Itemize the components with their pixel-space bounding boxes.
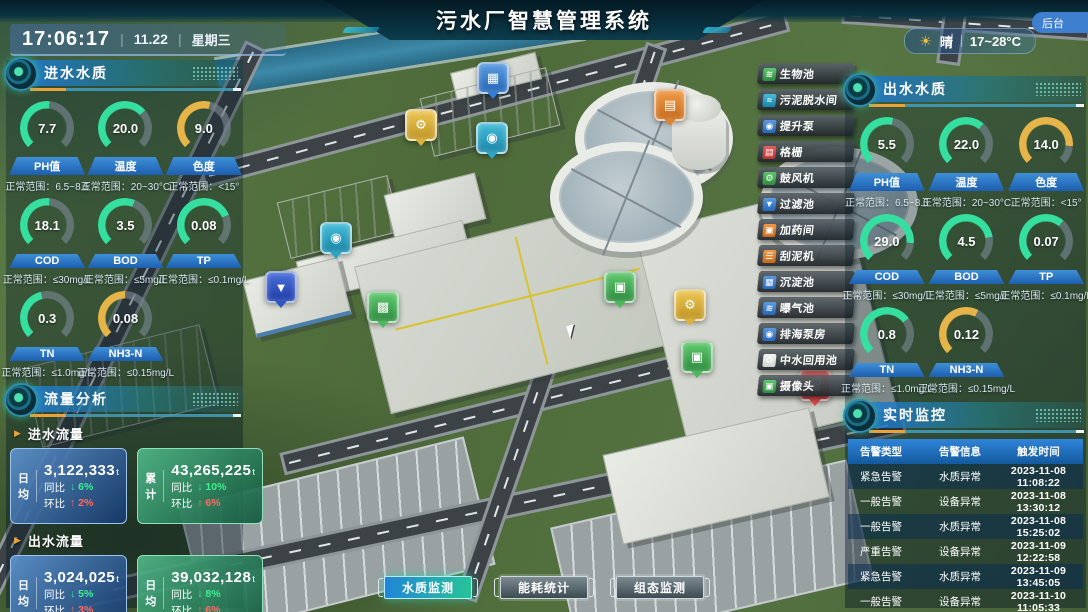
flow-value-number: 43,265,225	[171, 462, 251, 479]
gauge-ring: 22.0	[939, 117, 993, 171]
alarm-type: 紧急告警	[848, 469, 926, 484]
weather-bar: ☀ 晴 17~28°C	[904, 28, 1036, 54]
water-quality-gauge: 18.1 COD 正常范围：≤30mg/L	[8, 198, 86, 286]
flow-mom-row: 环比↑ 2%	[44, 496, 119, 511]
water-quality-gauge: 9.0 色度 正常范围：<15°	[165, 101, 243, 193]
alarm-table-header: 告警类型 告警信息 触发时间	[848, 439, 1083, 464]
water-quality-gauge: 0.08 TP 正常范围：≤0.1mg/L	[165, 198, 243, 286]
triangle-bullet-icon: ▶	[14, 428, 22, 439]
gauge-value: 14.0	[1019, 117, 1073, 171]
up-arrow-icon: ↑	[70, 604, 75, 612]
water-quality-gauge: 0.12 NH3-N 正常范围：≤0.15mg/L	[927, 307, 1007, 395]
flow-value-number: 39,032,128	[171, 569, 251, 586]
subtitle-text: 进水流量	[28, 424, 84, 443]
gauge-normal-range: 正常范围：≤0.1mg/L	[158, 271, 250, 286]
water-quality-gauge: 22.0 温度 正常范围：20~30°C	[927, 117, 1007, 209]
filter-pool-icon: ▼	[762, 198, 776, 211]
map-marker[interactable]: ▦	[477, 62, 509, 94]
subtitle-text: 出水流量	[28, 531, 84, 550]
inflow-subtitle: ▶ 进水流量	[14, 424, 243, 443]
sludge-dewatering-icon: ≈	[762, 94, 776, 107]
mud-scraper-icon: ☰	[762, 250, 776, 263]
separator: |	[120, 31, 124, 47]
grille-icon: ▤	[664, 97, 676, 113]
gauge-normal-range: 正常范围：6.5~8.5	[5, 178, 89, 193]
gauge-ring: 14.0	[1019, 117, 1073, 171]
section-title: 进水水质	[44, 63, 108, 83]
flow-unit: t	[116, 574, 119, 584]
map-facility-label[interactable]: ▣ 加药间	[757, 219, 855, 240]
alarm-row: 严重告警 设备异常 2023-11-09 12:22:58	[848, 539, 1083, 564]
gauge-ring: 3.5	[98, 198, 152, 252]
pump-icon: ◉	[330, 230, 341, 246]
section-underline	[869, 104, 1084, 107]
flow-value-number: 3,024,025	[44, 569, 115, 586]
flow-stat-card: 日均 3,024,025t 同比↓ 5% 环比↑ 3%	[10, 555, 127, 612]
gauge-normal-range: 正常范围：≤5mg/L	[84, 271, 167, 286]
facility-label-text: 格栅	[779, 144, 804, 160]
up-arrow-icon: ↑	[197, 497, 202, 509]
filter-funnel-icon: ▼	[275, 280, 288, 295]
yoy-trend: ↓ 6%	[70, 481, 93, 493]
water-reuse-pool-icon: ♻	[762, 354, 776, 367]
column-header: 告警类型	[848, 444, 926, 459]
mom-value: 2%	[78, 497, 93, 509]
flow-stat-card: 累计 43,265,225t 同比↓ 10% 环比↑ 6%	[137, 448, 263, 524]
inflow-cards: 日均 3,122,333t 同比↓ 6% 环比↑ 2% 累计 43,265,22…	[6, 448, 243, 524]
yoy-value: 5%	[78, 588, 93, 600]
water-quality-gauge: 7.7 PH值 正常范围：6.5~8.5	[8, 101, 86, 193]
yoy-label: 同比	[171, 587, 192, 602]
gauge-label: COD	[9, 254, 85, 268]
alarm-table: 告警类型 告警信息 触发时间 紧急告警 水质异常 2023-11-08 11:0…	[848, 439, 1083, 612]
alarm-info: 设备异常	[926, 594, 994, 609]
facility-label-text: 过滤池	[779, 196, 815, 212]
facility-label-text: 提升泵	[779, 118, 815, 134]
inlet-quality-section: 进水水质 7.7 PH值 正常范围：6.5~8.5 20.0 温度 正常范围：2…	[6, 60, 243, 384]
flow-stat-card: 日均 3,122,333t 同比↓ 6% 环比↑ 2%	[10, 448, 127, 524]
alarm-info: 设备异常	[926, 494, 994, 509]
alarm-type: 一般告警	[848, 494, 926, 509]
gauge-normal-range: 正常范围：≤0.15mg/L	[77, 364, 174, 379]
outflow-subtitle: ▶ 出水流量	[14, 531, 243, 550]
yoy-value: 8%	[205, 588, 220, 600]
down-arrow-icon: ↓	[197, 588, 202, 600]
gauge-label: NH3-N	[928, 363, 1004, 377]
mom-label: 环比	[171, 496, 192, 511]
mom-label: 环比	[171, 603, 192, 612]
separator: |	[178, 31, 182, 47]
gauge-label: TP	[166, 254, 242, 268]
gauge-ring: 0.08	[98, 291, 152, 345]
gauge-value: 5.5	[860, 117, 914, 171]
map-marker[interactable]: ▣	[681, 341, 713, 373]
facility-label-text: 中水回用池	[779, 352, 838, 368]
section-underline	[30, 88, 241, 91]
alarm-type: 一般告警	[848, 519, 926, 534]
sun-icon: ☀	[919, 33, 932, 50]
gauge-ring: 0.12	[939, 307, 993, 361]
gauge-normal-range: 正常范围：≤0.1mg/L	[1000, 287, 1088, 302]
alarm-time: 2023-11-08 15:25:02	[994, 515, 1083, 539]
gauge-label: TP	[1008, 270, 1084, 284]
flow-card-body: 43,265,225t 同比↓ 10% 环比↑ 6%	[171, 462, 255, 511]
gauge-value: 29.0	[860, 214, 914, 268]
section-header: 进水水质	[30, 60, 243, 86]
water-quality-gauge: 0.3 TN 正常范围：≤1.0mg/L	[8, 291, 86, 379]
down-arrow-icon: ↓	[70, 588, 75, 600]
gauge-label: 色度	[166, 157, 242, 175]
blower-fan-icon: ⚙	[684, 297, 696, 313]
outflow-cards: 日均 3,024,025t 同比↓ 5% 环比↑ 3% 日均 39,032,12…	[6, 555, 243, 612]
alarm-info: 设备异常	[926, 544, 994, 559]
alarm-type: 严重告警	[848, 544, 926, 559]
gauge-normal-range: 正常范围：<15°	[1011, 194, 1082, 209]
flow-card-tag: 日均	[145, 577, 164, 609]
alarm-info: 水质异常	[926, 569, 994, 584]
flow-card-tag: 日均	[18, 470, 37, 502]
water-quality-gauge: 0.07 TP 正常范围：≤0.1mg/L	[1006, 214, 1086, 302]
alarm-info: 水质异常	[926, 469, 994, 484]
up-arrow-icon: ↑	[70, 497, 75, 509]
map-marker[interactable]: ⚙	[405, 109, 437, 141]
column-header: 告警信息	[926, 444, 994, 459]
facility-label-text: 曝气池	[779, 300, 815, 316]
flow-yoy-row: 同比↓ 5%	[44, 587, 119, 602]
map-marker[interactable]: ▩	[367, 291, 399, 323]
flow-card-body: 39,032,128t 同比↓ 8% 环比↑ 6%	[171, 569, 255, 612]
section-underline	[869, 430, 1084, 433]
mom-value: 6%	[205, 497, 220, 509]
alarm-time: 2023-11-09 12:22:58	[994, 540, 1083, 564]
map-marker[interactable]: ▼	[265, 271, 297, 303]
gauge-value: 22.0	[939, 117, 993, 171]
date: 11.22	[134, 31, 168, 47]
blower-fan-icon: ⚙	[762, 172, 776, 185]
flow-card-tag: 日均	[18, 577, 37, 609]
mom-trend: ↑ 3%	[70, 604, 93, 612]
alarm-table-body: 紧急告警 水质异常 2023-11-08 11:08:22 一般告警 设备异常 …	[848, 464, 1083, 612]
datetime-bar: 17:06:17 | 11.22 | 星期三	[10, 24, 286, 56]
flow-card-tag: 累计	[145, 470, 164, 502]
map-marker[interactable]: ▤	[654, 89, 686, 121]
map-marker[interactable]: ▣	[604, 271, 636, 303]
alarm-time: 2023-11-09 13:45:05	[994, 565, 1083, 589]
dosing-room-icon: ▩	[377, 299, 389, 315]
tab-scada-monitor[interactable]: 组态监测	[616, 576, 704, 599]
sedimentation-pool-icon: ▦	[762, 276, 776, 289]
tab-water-quality-monitor[interactable]: 水质监测	[384, 576, 472, 599]
gauge-ring: 18.1	[20, 198, 74, 252]
weather-condition: 晴	[940, 32, 953, 51]
map-facility-label[interactable]: ≈ 污泥脱水间	[757, 89, 855, 110]
flow-value: 39,032,128t	[171, 569, 255, 586]
mom-value: 6%	[205, 604, 220, 612]
yoy-trend: ↓ 5%	[70, 588, 93, 600]
right-panel: 出水水质 5.5 PH值 正常范围：6.5~8.5 22.0 温度 正常范围：2…	[845, 76, 1086, 608]
grille-icon: ▤	[762, 146, 776, 159]
gauge-label: BOD	[928, 270, 1004, 284]
flow-value: 43,265,225t	[171, 462, 255, 479]
facility-label-text: 鼓风机	[779, 170, 815, 186]
gauge-ring: 4.5	[939, 214, 993, 268]
map-facility-label[interactable]: ☰ 刮泥机	[757, 245, 855, 266]
yoy-value: 6%	[78, 481, 93, 493]
divider	[961, 35, 962, 47]
clock: 17:06:17	[22, 28, 110, 51]
footer-tab-bar: 水质监测 能耗统计 组态监测	[384, 576, 704, 599]
alarm-row: 一般告警 设备异常 2023-11-10 11:05:33	[848, 589, 1083, 612]
facility-label-text: 沉淀池	[779, 274, 815, 290]
yoy-trend: ↓ 8%	[197, 588, 220, 600]
flow-yoy-row: 同比↓ 10%	[171, 480, 255, 495]
gauge-ring: 0.07	[1019, 214, 1073, 268]
gauge-label: PH值	[9, 157, 85, 175]
map-facility-label[interactable]: ▼ 过滤池	[757, 193, 855, 214]
camera-icon: ▣	[762, 380, 776, 393]
map-marker[interactable]: ◉	[320, 222, 352, 254]
yoy-value: 10%	[205, 481, 226, 493]
flow-unit: t	[252, 467, 255, 477]
water-quality-gauge: 0.08 NH3-N 正常范围：≤0.15mg/L	[86, 291, 164, 379]
flow-card-body: 3,122,333t 同比↓ 6% 环比↑ 2%	[44, 462, 119, 511]
dashboard: ▦ ⚙ ◉ ▤ ◉ ▼ ▩ ▣ ⚙ ▣ ≋ 生物池 ≈ 污泥脱水间 ◉ 提升泵 …	[0, 0, 1088, 612]
water-quality-gauge: 14.0 色度 正常范围：<15°	[1006, 117, 1086, 209]
alarm-type: 一般告警	[848, 594, 926, 609]
yoy-label: 同比	[44, 587, 65, 602]
alarm-row: 一般告警 设备异常 2023-11-08 13:30:12	[848, 489, 1083, 514]
water-quality-gauge: 0.8 TN 正常范围：≤1.0mg/L	[847, 307, 927, 395]
water-quality-gauge: 4.5 BOD 正常范围：≤5mg/L	[927, 214, 1007, 302]
flow-mom-row: 环比↑ 3%	[44, 603, 119, 612]
page-title: 污水厂智慧管理系统	[436, 5, 652, 35]
up-arrow-icon: ↑	[197, 604, 202, 612]
tab-energy-statistics[interactable]: 能耗统计	[500, 576, 588, 599]
radar-ring-icon	[843, 73, 877, 107]
gauge-label: 色度	[1008, 173, 1084, 191]
backstage-button[interactable]: 后台	[1032, 12, 1088, 33]
gauge-ring: 20.0	[98, 101, 152, 155]
gauge-normal-range: 正常范围：20~30°C	[81, 178, 170, 193]
gauge-value: 20.0	[98, 101, 152, 155]
alarm-info: 水质异常	[926, 519, 994, 534]
gauge-normal-range: 正常范围：<15°	[168, 178, 239, 193]
down-arrow-icon: ↓	[197, 481, 202, 493]
radar-ring-icon	[4, 383, 38, 417]
flow-yoy-row: 同比↓ 8%	[171, 587, 255, 602]
gauge-label: COD	[849, 270, 925, 284]
gauge-normal-range: 正常范围：≤5mg/L	[925, 287, 1008, 302]
gauge-normal-range: 正常范围：≤0.15mg/L	[918, 380, 1015, 395]
bio-pool-icon: ≋	[762, 68, 776, 81]
section-header: 实时监控	[869, 402, 1086, 428]
yoy-label: 同比	[44, 480, 65, 495]
title-accent	[702, 27, 732, 33]
map-facility-label[interactable]: ♻ 中水回用池	[757, 349, 855, 370]
water-quality-gauge: 5.5 PH值 正常范围：6.5~8.5	[847, 117, 927, 209]
gauge-value: 18.1	[20, 198, 74, 252]
gauge-normal-range: 正常范围：6.5~8.5	[845, 194, 929, 209]
section-title: 流量分析	[44, 389, 108, 409]
gauge-label: 温度	[928, 173, 1004, 191]
flow-analysis-section: 流量分析 ▶ 进水流量 日均 3,122,333t 同比↓ 6% 环比↑ 2% …	[6, 386, 243, 612]
lift-pump-icon: ◉	[762, 120, 776, 133]
flow-value: 3,122,333t	[44, 462, 119, 479]
section-title: 出水水质	[883, 79, 947, 99]
gauge-value: 3.5	[98, 198, 152, 252]
weather-temperature: 17~28°C	[970, 34, 1021, 49]
gauge-label: TN	[849, 363, 925, 377]
flow-stat-card: 日均 39,032,128t 同比↓ 8% 环比↑ 6%	[137, 555, 263, 612]
gauge-normal-range: 正常范围：≤30mg/L	[842, 287, 931, 302]
water-quality-gauge: 29.0 COD 正常范围：≤30mg/L	[847, 214, 927, 302]
flow-mom-row: 环比↑ 6%	[171, 496, 255, 511]
alarm-row: 紧急告警 水质异常 2023-11-08 11:08:22	[848, 464, 1083, 489]
radar-ring-icon	[4, 57, 38, 91]
facility-label-text: 污泥脱水间	[779, 92, 838, 108]
mom-label: 环比	[44, 496, 65, 511]
gauge-normal-range: 正常范围：20~30°C	[922, 194, 1011, 209]
camera-icon: ▣	[691, 349, 703, 365]
flow-yoy-row: 同比↓ 6%	[44, 480, 119, 495]
water-quality-gauge: 3.5 BOD 正常范围：≤5mg/L	[86, 198, 164, 286]
mom-value: 3%	[78, 604, 93, 612]
map-facility-label[interactable]: ⚙ 鼓风机	[757, 167, 855, 188]
mom-trend: ↑ 6%	[197, 604, 220, 612]
gauge-ring: 0.08	[177, 198, 231, 252]
triangle-bullet-icon: ▶	[14, 535, 22, 546]
map-facility-label[interactable]: ▦ 沉淀池	[757, 271, 855, 292]
flow-unit: t	[116, 467, 119, 477]
gauge-ring: 7.7	[20, 101, 74, 155]
aeration-pool-icon: ≋	[762, 302, 776, 315]
gauge-value: 9.0	[177, 101, 231, 155]
facility-label-text: 生物池	[779, 66, 815, 82]
gauge-value: 0.8	[860, 307, 914, 361]
alarm-time: 2023-11-10 11:05:33	[994, 590, 1083, 612]
map-facility-label[interactable]: ≋ 生物池	[757, 63, 855, 84]
map-facility-label[interactable]: ◉ 排海泵房	[757, 323, 855, 344]
outlet-quality-section: 出水水质 5.5 PH值 正常范围：6.5~8.5 22.0 温度 正常范围：2…	[845, 76, 1086, 400]
gauge-ring: 0.3	[20, 291, 74, 345]
section-underline	[30, 414, 241, 417]
flow-value-number: 3,122,333	[44, 462, 115, 479]
gauge-label: PH值	[849, 173, 925, 191]
gauge-ring: 5.5	[860, 117, 914, 171]
map-facility-label[interactable]: ▤ 格栅	[757, 141, 855, 162]
title-accent	[342, 27, 380, 33]
gauge-value: 7.7	[20, 101, 74, 155]
mom-trend: ↑ 2%	[70, 497, 93, 509]
gauge-value: 0.07	[1019, 214, 1073, 268]
section-title: 实时监控	[883, 405, 947, 425]
blower-fan-icon: ⚙	[415, 117, 427, 133]
left-panel: 进水水质 7.7 PH值 正常范围：6.5~8.5 20.0 温度 正常范围：2…	[6, 60, 243, 608]
facility-label-text: 刮泥机	[779, 248, 815, 264]
gauge-value: 0.08	[98, 291, 152, 345]
yellow-pipe	[515, 237, 549, 366]
mom-label: 环比	[44, 603, 65, 612]
radar-ring-icon	[843, 399, 877, 433]
water-quality-gauge: 20.0 温度 正常范围：20~30°C	[86, 101, 164, 193]
gauge-ring: 0.8	[860, 307, 914, 361]
facility-label-list: ≋ 生物池 ≈ 污泥脱水间 ◉ 提升泵 ▤ 格栅 ⚙ 鼓风机 ▼ 过滤池 ▣ 加…	[758, 63, 854, 396]
gauge-ring: 9.0	[177, 101, 231, 155]
flow-unit: t	[252, 574, 255, 584]
realtime-monitor-section: 实时监控 告警类型 告警信息 触发时间 紧急告警 水质异常 2023-11-08…	[845, 402, 1086, 612]
down-arrow-icon: ↓	[70, 481, 75, 493]
flow-card-body: 3,024,025t 同比↓ 5% 环比↑ 3%	[44, 569, 119, 612]
flow-mom-row: 环比↑ 6%	[171, 603, 255, 612]
gauge-label: NH3-N	[87, 347, 163, 361]
gauge-label: 温度	[87, 157, 163, 175]
map-marker[interactable]: ◉	[476, 122, 508, 154]
sea-discharge-pump-icon: ◉	[762, 328, 776, 341]
section-header: 出水水质	[869, 76, 1086, 102]
column-header: 触发时间	[994, 444, 1083, 459]
facility-label-text: 摄像头	[779, 378, 815, 394]
gauge-value: 0.08	[177, 198, 231, 252]
yoy-label: 同比	[171, 480, 192, 495]
facility-label-text: 排海泵房	[779, 326, 827, 342]
alarm-time: 2023-11-08 13:30:12	[994, 490, 1083, 514]
gauge-ring: 29.0	[860, 214, 914, 268]
gauge-value: 0.3	[20, 291, 74, 345]
gauge-label: BOD	[87, 254, 163, 268]
alarm-type: 紧急告警	[848, 569, 926, 584]
yoy-trend: ↓ 10%	[197, 481, 226, 493]
inlet-gauge-grid: 7.7 PH值 正常范围：6.5~8.5 20.0 温度 正常范围：20~30°…	[6, 95, 243, 384]
dosing-room-icon: ▣	[762, 224, 776, 237]
lift-pump-icon: ◉	[486, 130, 497, 146]
facility-label-text: 加药间	[779, 222, 815, 238]
flow-value: 3,024,025t	[44, 569, 119, 586]
camera-icon: ▣	[614, 279, 626, 295]
mom-trend: ↑ 6%	[197, 497, 220, 509]
gauge-normal-range: 正常范围：≤30mg/L	[3, 271, 92, 286]
gauge-value: 0.12	[939, 307, 993, 361]
alarm-time: 2023-11-08 11:08:22	[994, 465, 1083, 489]
alarm-row: 紧急告警 水质异常 2023-11-09 13:45:05	[848, 564, 1083, 589]
gauge-label: TN	[9, 347, 85, 361]
map-facility-label[interactable]: ≋ 曝气池	[757, 297, 855, 318]
sedimentation-pool-icon: ▦	[487, 70, 499, 86]
map-facility-label[interactable]: ◉ 提升泵	[757, 115, 855, 136]
outlet-gauge-grid: 5.5 PH值 正常范围：6.5~8.5 22.0 温度 正常范围：20~30°…	[845, 111, 1086, 400]
alarm-row: 一般告警 水质异常 2023-11-08 15:25:02	[848, 514, 1083, 539]
weekday: 星期三	[192, 30, 231, 49]
gauge-value: 4.5	[939, 214, 993, 268]
section-header: 流量分析	[30, 386, 243, 412]
map-marker[interactable]: ⚙	[674, 289, 706, 321]
